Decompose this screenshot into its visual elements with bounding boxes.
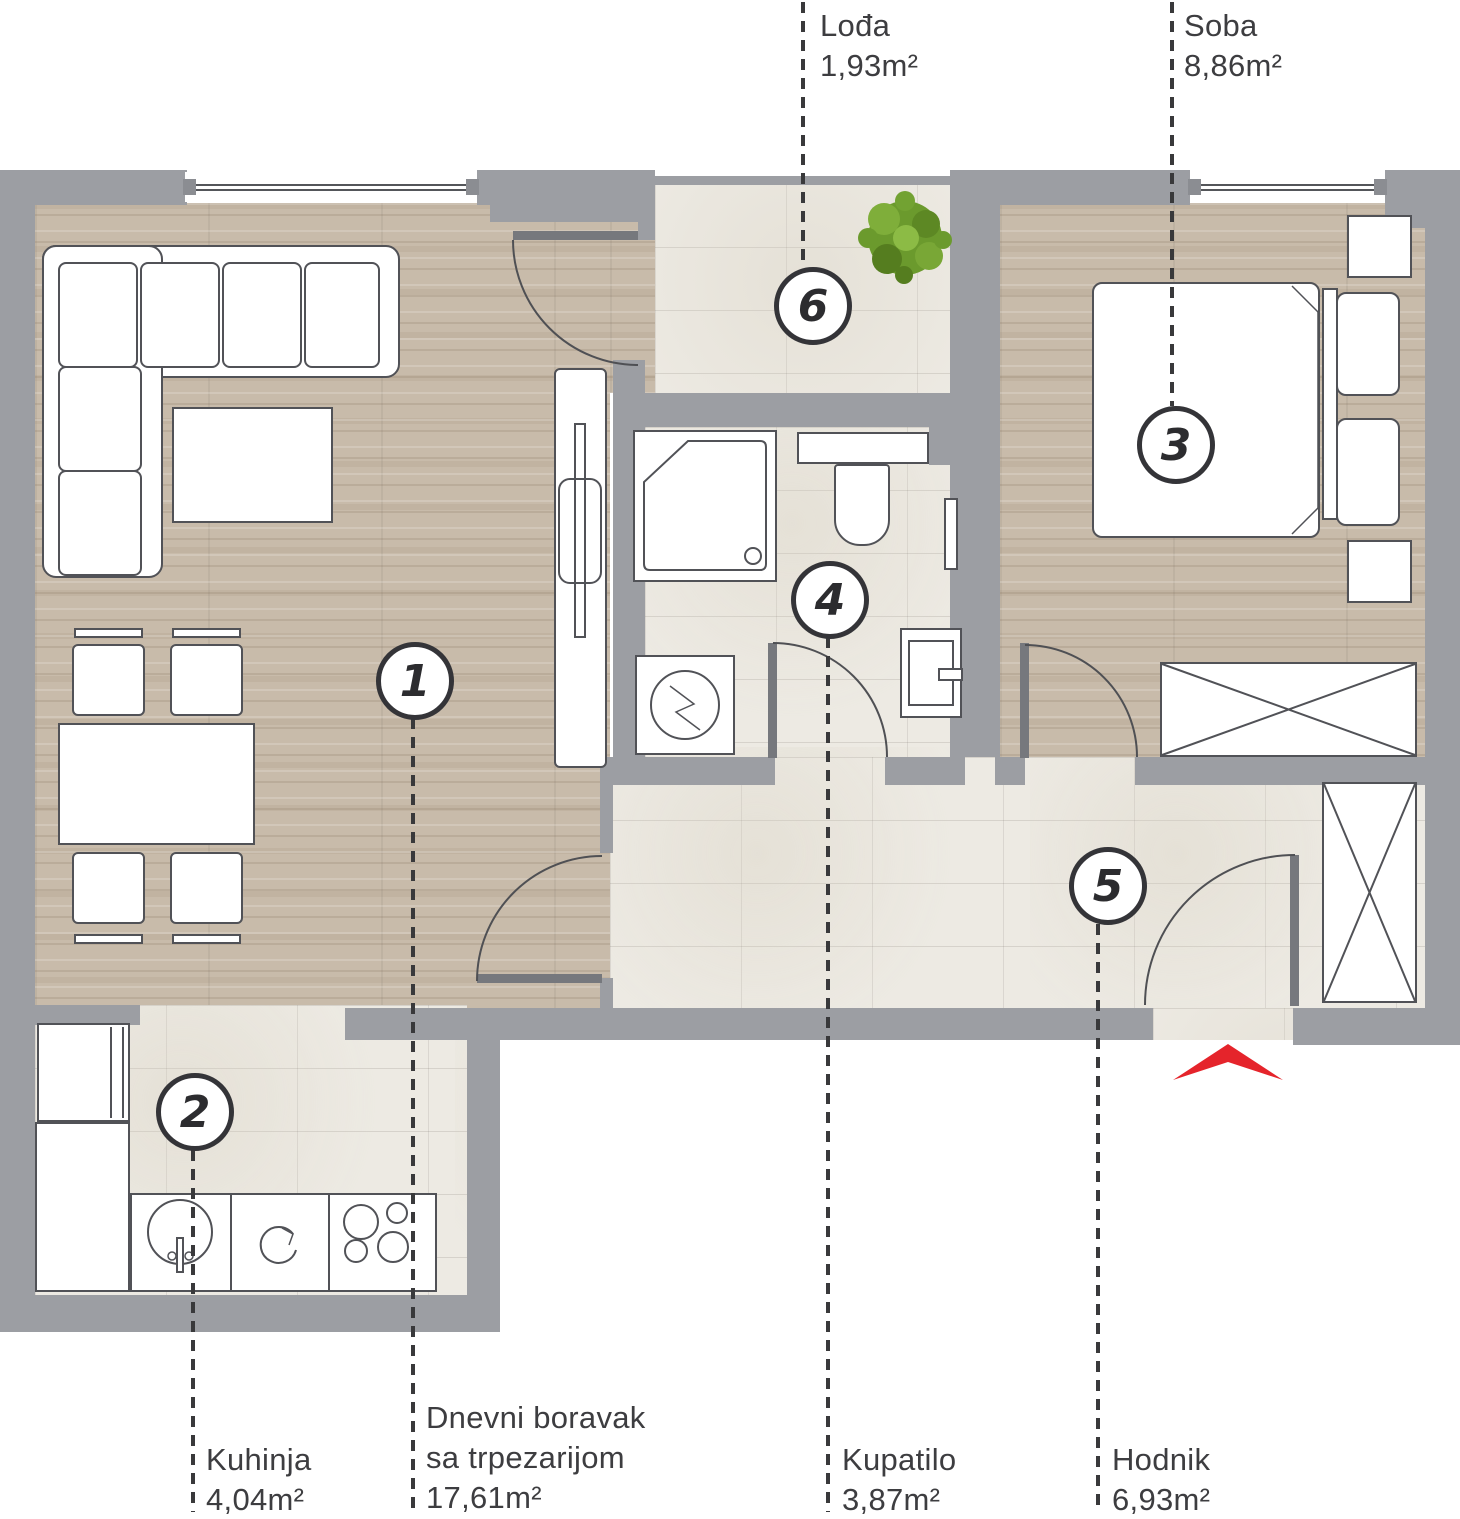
dining-chair-back (74, 934, 143, 944)
room-label-area: 1,93m² (820, 46, 918, 86)
dining-chair (170, 852, 243, 924)
floor-entrance-threshold (1153, 1008, 1293, 1040)
dining-chair-back (172, 934, 241, 944)
wall-living-hall-upper (600, 785, 613, 853)
room-number: 2 (180, 1087, 211, 1138)
dining-chair-back (74, 628, 143, 638)
counter-divider (328, 1195, 330, 1290)
room-marker-bathroom: 4 (791, 561, 869, 639)
wall-loggia-bottom (613, 393, 965, 427)
room-label-name: Soba (1184, 6, 1282, 46)
entrance-door (1290, 855, 1299, 1006)
kitchen-counter-bottom (130, 1193, 437, 1292)
bed-mattress (1092, 282, 1320, 538)
wall-bedroom-top (1000, 170, 1190, 205)
wall-kitchen-bottom (0, 1295, 500, 1332)
wall-bedroom-bottom (1135, 757, 1425, 785)
ref-line-bedroom (1170, 2, 1174, 406)
wall-top-mid-step (490, 205, 640, 222)
wall-left (0, 170, 35, 1332)
room-marker-hallway: 5 (1069, 847, 1147, 925)
room-number: 5 (1093, 861, 1124, 912)
toilet-bowl (834, 464, 890, 546)
toilet-tank (797, 432, 929, 464)
floor-hallway (610, 757, 1425, 1008)
room-label-bedroom: Soba 8,86m² (1184, 6, 1282, 86)
sofa-cushion (58, 470, 142, 576)
sofa-cushion (58, 366, 142, 472)
sofa-cushion (58, 262, 138, 368)
bedroom-door (1020, 643, 1029, 758)
dining-chair (72, 644, 145, 716)
ref-line-living (411, 718, 415, 1512)
room-label-area: 17,61m² (426, 1478, 646, 1518)
window-cap-icon (466, 179, 479, 195)
room-label-name: Kupatilo (842, 1440, 956, 1480)
room-number: 4 (815, 575, 846, 626)
window-cap-icon (1188, 179, 1201, 195)
living-room-door (477, 974, 602, 983)
wall-bedroom-bottom-stub (995, 757, 1025, 785)
washing-machine (635, 655, 735, 755)
dining-table (58, 723, 255, 845)
wall-kitchen-right (467, 1040, 500, 1295)
room-label-name: Hodnik (1112, 1440, 1210, 1480)
loggia-door (513, 231, 638, 240)
fridge (37, 1023, 130, 1122)
coffee-table (172, 407, 333, 523)
room-label-name-line1: Dnevni boravak (426, 1398, 646, 1438)
wall-loggia-left (638, 170, 655, 240)
room-label-area: 3,87m² (842, 1480, 956, 1519)
entry-arrow-icon (1173, 1044, 1283, 1080)
sofa-cushion (304, 262, 380, 368)
wall-bottom-right (1293, 1008, 1460, 1045)
pillow (1336, 292, 1400, 396)
tv-bracket (558, 478, 602, 584)
nightstand (1347, 540, 1412, 603)
ref-line-bathroom (826, 637, 830, 1512)
sofa-cushion (140, 262, 220, 368)
towel-rail (944, 498, 958, 570)
room-label-area: 6,93m² (1112, 1480, 1210, 1519)
bathroom-door (768, 643, 777, 758)
room-label-name: Kuhinja (206, 1440, 312, 1480)
room-label-bathroom: Kupatilo 3,87m² (842, 1440, 956, 1519)
room-label-area: 8,86m² (1184, 46, 1282, 86)
nightstand (1347, 215, 1412, 278)
room-marker-kitchen: 2 (156, 1073, 234, 1151)
room-label-name: Lođa (820, 6, 918, 46)
dining-chair-back (172, 628, 241, 638)
wall-loggia-door-step (613, 360, 645, 393)
dining-chair (170, 644, 243, 716)
bathroom-tap (938, 668, 963, 681)
wall-top-mid (477, 170, 650, 205)
kitchen-counter-left (35, 1122, 130, 1292)
room-marker-bedroom: 3 (1137, 406, 1215, 484)
room-label-name-line2: sa trpezarijom (426, 1438, 646, 1478)
wall-toilet-niche (929, 427, 950, 465)
wall-bath-bottom-right (885, 757, 965, 785)
room-label-hallway: Hodnik 6,93m² (1112, 1440, 1210, 1519)
dining-chair (72, 852, 145, 924)
living-room-window (185, 172, 477, 202)
room-number: 1 (400, 656, 431, 707)
pillow (1336, 418, 1400, 526)
room-label-loggia: Lođa 1,93m² (820, 6, 918, 86)
window-cap-icon (1374, 179, 1387, 195)
wall-bottom-main (345, 1008, 1153, 1040)
window-cap-icon (183, 179, 196, 195)
room-marker-living: 1 (376, 642, 454, 720)
room-number: 6 (798, 281, 829, 332)
bedroom-window (1190, 172, 1385, 202)
ref-line-hallway (1096, 924, 1100, 1512)
hallway-wardrobe (1322, 782, 1417, 1003)
floor-plan: 1 2 3 4 5 6 Lođa 1,93m² Soba 8,86m² Kuhi… (0, 0, 1460, 1519)
fridge-door-line (110, 1027, 124, 1118)
room-label-kitchen: Kuhinja 4,04m² (206, 1440, 312, 1519)
shower-tray (633, 430, 777, 582)
wall-bath-bottom-left (600, 757, 775, 785)
room-marker-loggia: 6 (774, 267, 852, 345)
wall-kitchen-stub (33, 1005, 140, 1025)
sofa-cushion (222, 262, 302, 368)
room-label-living: Dnevni boravak sa trpezarijom 17,61m² (426, 1398, 646, 1518)
bedroom-wardrobe (1160, 662, 1417, 757)
room-number: 3 (1161, 420, 1192, 471)
room-label-area: 4,04m² (206, 1480, 312, 1519)
wall-right (1425, 170, 1460, 1045)
ref-line-kitchen (191, 1150, 195, 1512)
ref-line-loggia (801, 2, 805, 268)
counter-divider (230, 1195, 232, 1290)
